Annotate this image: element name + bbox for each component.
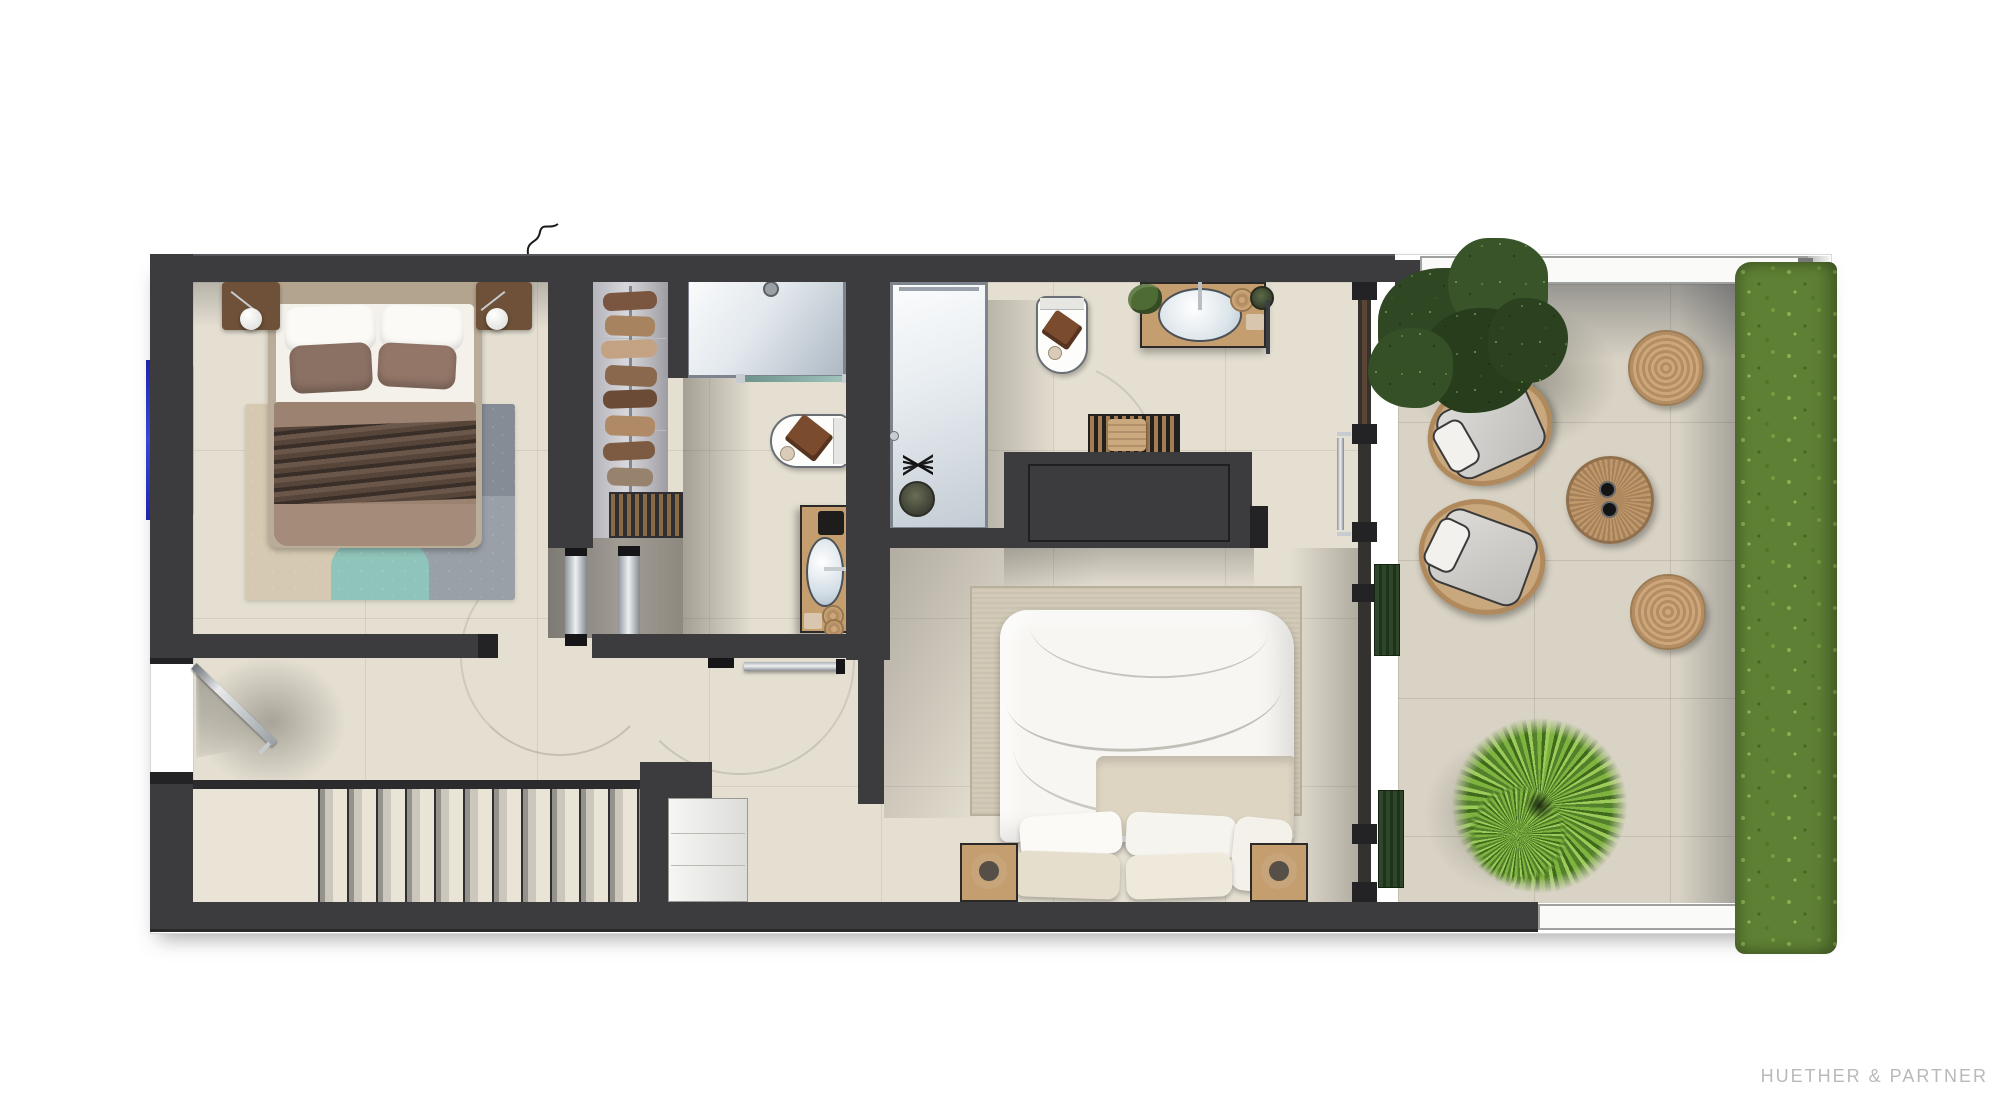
wall-left bbox=[150, 254, 193, 664]
toilet-cup bbox=[780, 446, 795, 461]
door-jamb bbox=[150, 772, 193, 784]
nightstand bbox=[1250, 843, 1308, 902]
glazing-glass bbox=[1362, 300, 1367, 426]
glazing-mullion bbox=[1352, 824, 1377, 844]
closet2-glass-edge bbox=[1028, 464, 1230, 542]
pouf bbox=[1630, 574, 1706, 650]
shower-head-icon bbox=[763, 281, 779, 297]
soap-block bbox=[804, 613, 822, 629]
cable-squiggle bbox=[524, 222, 564, 256]
clothes-item bbox=[603, 441, 656, 462]
wall-shower2-bottom bbox=[884, 528, 1006, 548]
olive-jar bbox=[1250, 286, 1274, 310]
shower1 bbox=[686, 276, 846, 378]
wall-stair-nook bbox=[640, 762, 712, 798]
stair-edge-line bbox=[193, 780, 640, 789]
wall-bath-divider bbox=[846, 280, 890, 660]
terrace-shutter-green bbox=[1378, 790, 1404, 888]
pouf bbox=[1628, 330, 1704, 406]
hall-cabinet bbox=[668, 798, 748, 902]
vanity2-glass-screen bbox=[1266, 300, 1270, 354]
shower1-glass bbox=[744, 376, 844, 382]
towel bbox=[1108, 419, 1146, 451]
terrace-shutter-green bbox=[1374, 564, 1400, 656]
glass-door-panel bbox=[618, 548, 640, 644]
hedge bbox=[1735, 262, 1837, 954]
handle-hook bbox=[1337, 432, 1351, 436]
bed2-duvet bbox=[1000, 610, 1294, 842]
wall-wardrobe-right bbox=[668, 282, 688, 378]
bed1-pillow-brown bbox=[377, 342, 457, 390]
bed1-duvet-foot bbox=[274, 504, 476, 546]
rattan-decor bbox=[1261, 853, 1297, 889]
toilet-lid-tray bbox=[1041, 309, 1083, 350]
rattan-decor bbox=[971, 853, 1007, 889]
stair-treads bbox=[318, 788, 640, 902]
toilet-tank bbox=[833, 418, 846, 464]
wall-hall-top bbox=[592, 634, 884, 658]
cup bbox=[1601, 501, 1618, 518]
vanity2 bbox=[1140, 282, 1266, 348]
shower2 bbox=[890, 282, 988, 530]
terrace-tree bbox=[1368, 238, 1573, 433]
cabinet-line bbox=[671, 865, 745, 866]
shower1-glass-cap bbox=[736, 374, 745, 383]
clothes-item bbox=[601, 339, 658, 359]
wall-top bbox=[150, 254, 1395, 282]
faucet-icon bbox=[1198, 282, 1202, 310]
toilet-cup bbox=[1048, 346, 1062, 360]
wall-bedroom1-right bbox=[548, 282, 593, 548]
toilet-tank bbox=[1040, 298, 1084, 310]
vanity1-tray bbox=[818, 511, 844, 535]
toilet bbox=[770, 414, 848, 468]
soap-block bbox=[1246, 314, 1264, 330]
vanity1 bbox=[800, 505, 848, 633]
faucet-icon bbox=[824, 567, 846, 571]
wall-lamp bbox=[240, 308, 262, 330]
studio-caption: HUETHER & PARTNER bbox=[1761, 1066, 1988, 1087]
bed2-pillow-beige bbox=[1013, 850, 1121, 900]
nightstand bbox=[960, 843, 1018, 902]
foliage-blob bbox=[1368, 328, 1453, 408]
handle-hook bbox=[1337, 532, 1351, 536]
terrace-door-handle bbox=[1337, 438, 1344, 530]
closet2-stub bbox=[1250, 506, 1268, 548]
wood-slat-bench bbox=[1088, 414, 1180, 456]
stairs bbox=[193, 788, 640, 902]
wood-slat-bench bbox=[609, 492, 683, 538]
wall-lamp bbox=[486, 308, 508, 330]
clothes-item bbox=[603, 389, 658, 409]
door-cap bbox=[836, 659, 845, 674]
sliding-door-leaf bbox=[744, 662, 838, 671]
cabinet-line bbox=[671, 833, 745, 834]
bed1-duvet bbox=[274, 402, 476, 546]
wall-stair-right bbox=[640, 798, 668, 902]
clothes-item bbox=[605, 415, 656, 437]
wall-bottom bbox=[150, 902, 1538, 932]
shower2-door-rail bbox=[899, 287, 979, 291]
dry-plant-icon bbox=[903, 445, 933, 485]
plant-pot bbox=[1128, 284, 1162, 314]
sink-oval bbox=[806, 537, 844, 607]
cable-path bbox=[528, 224, 558, 254]
glazing-mullion bbox=[1352, 882, 1377, 902]
cup bbox=[1599, 481, 1616, 498]
door-cap bbox=[565, 634, 587, 646]
door-cap bbox=[618, 546, 640, 556]
palm-center bbox=[1526, 792, 1553, 819]
bed2-pillow-beige bbox=[1125, 852, 1232, 900]
bed1 bbox=[268, 276, 482, 548]
wall-bedroom1-bottom bbox=[150, 634, 498, 658]
glazing-mullion bbox=[1352, 522, 1377, 542]
foliage-texture bbox=[1368, 328, 1453, 408]
clothes-item bbox=[607, 467, 654, 487]
foliage-blob bbox=[1488, 298, 1568, 383]
bed1-pillow-brown bbox=[289, 342, 373, 394]
bed1-duvet-wrinkles bbox=[274, 420, 476, 505]
door-stop-block bbox=[478, 634, 498, 658]
floor-plan: HUETHER & PARTNER bbox=[0, 0, 2000, 1098]
shower2-handle bbox=[889, 431, 899, 441]
clothes-item bbox=[605, 365, 658, 388]
clothes-item bbox=[603, 291, 658, 312]
terrace-palm bbox=[1452, 718, 1627, 893]
coffee-table bbox=[1566, 456, 1654, 544]
glass-door-panel bbox=[565, 548, 587, 644]
plant-vase bbox=[899, 481, 935, 517]
foliage-texture bbox=[1488, 298, 1568, 383]
clothes-item bbox=[605, 315, 656, 337]
toilet bbox=[1036, 296, 1088, 374]
